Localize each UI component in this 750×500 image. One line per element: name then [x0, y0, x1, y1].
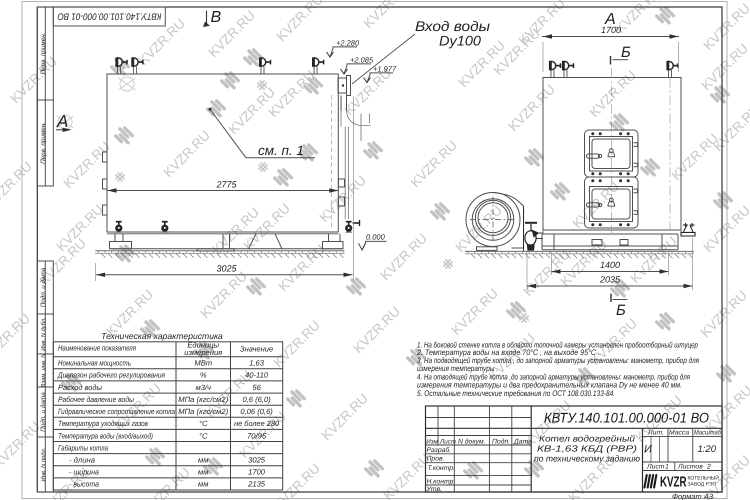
svg-text:KVZR.RU: KVZR.RU: [141, 465, 194, 500]
svg-text:Формат А3: Формат А3: [672, 492, 714, 500]
svg-text:м3/ч: м3/ч: [196, 383, 212, 392]
svg-text:МПа (кгс/см2): МПа (кгс/см2): [178, 407, 228, 416]
svg-text:Температура уходящих газов: Температура уходящих газов: [58, 419, 148, 428]
svg-text:KVZR.RU: KVZR.RU: [319, 391, 372, 444]
svg-text:KVZR.RU: KVZR.RU: [378, 231, 431, 284]
svg-text:%: %: [200, 371, 207, 380]
svg-text:2035: 2035: [599, 275, 621, 285]
svg-text:KVZR.RU: KVZR.RU: [711, 102, 750, 155]
svg-text:ЗАВОД РЭП: ЗАВОД РЭП: [688, 482, 717, 488]
svg-text:Масштаб: Масштаб: [694, 430, 722, 437]
svg-text:Лист: Лист: [646, 464, 665, 471]
svg-text:Dy100: Dy100: [439, 33, 481, 49]
svg-text:МПа (кгс/см2): МПа (кгс/см2): [178, 395, 228, 404]
svg-text:не более 280: не более 280: [234, 419, 280, 428]
svg-text:N докум.: N докум.: [458, 439, 486, 446]
svg-text:Утв.: Утв.: [426, 486, 443, 493]
svg-text:2775: 2775: [215, 180, 237, 190]
svg-text:Подп. и дата: Подп. и дата: [40, 392, 47, 432]
svg-text:И: И: [644, 444, 652, 456]
svg-text:мм: мм: [198, 480, 209, 489]
svg-text:+2.085: +2.085: [350, 56, 374, 65]
svg-text:мм: мм: [198, 468, 209, 477]
svg-text:40-110: 40-110: [245, 371, 269, 380]
svg-text:1400: 1400: [600, 260, 620, 270]
svg-text:В: В: [211, 9, 222, 26]
svg-text:Т.контр.: Т.контр.: [428, 465, 456, 472]
svg-text:Б: Б: [616, 302, 626, 319]
svg-text:KVZR.RU: KVZR.RU: [449, 286, 502, 339]
svg-text:Перв. примен.: Перв. примен.: [40, 122, 47, 164]
svg-text:Дата: Дата: [513, 439, 532, 446]
svg-text:Наименование показателя: Наименование показателя: [58, 344, 136, 353]
svg-text:KVZR.RU: KVZR.RU: [351, 304, 404, 357]
svg-text:А: А: [56, 112, 68, 131]
svg-text:КВ-1,63 КБД (РВР): КВ-1,63 КБД (РВР): [537, 444, 637, 454]
svg-text:°С: °С: [199, 419, 208, 428]
svg-text:Инв. N дубл.: Инв. N дубл.: [40, 317, 47, 351]
svg-text:1,63: 1,63: [249, 359, 265, 368]
svg-text:- ширина: - ширина: [69, 468, 99, 477]
svg-text:Инв. N подл.: Инв. N подл.: [40, 448, 47, 482]
svg-text:Рабочее давление воды: Рабочее давление воды: [58, 395, 134, 404]
svg-text:+2.280: +2.280: [336, 39, 360, 48]
svg-text:KVZR.RU: KVZR.RU: [0, 311, 33, 364]
svg-text:см. п. 1: см. п. 1: [258, 143, 304, 158]
svg-text:Перв. примен.: Перв. примен.: [40, 33, 47, 75]
svg-text:KVZR.RU: KVZR.RU: [271, 461, 324, 500]
svg-text:KVZR.RU: KVZR.RU: [408, 138, 461, 191]
svg-text:Масса: Масса: [669, 430, 689, 437]
svg-text:Подп.: Подп.: [492, 439, 510, 446]
svg-text:1700: 1700: [601, 25, 621, 35]
svg-text:Разраб.: Разраб.: [427, 447, 452, 454]
svg-text:0,06 (0,6): 0,06 (0,6): [240, 407, 273, 416]
svg-text:- высота: - высота: [69, 480, 99, 489]
svg-text:- длина: - длина: [69, 456, 95, 465]
svg-text:3025: 3025: [248, 456, 266, 465]
svg-text:KVZR.RU: KVZR.RU: [271, 318, 324, 371]
svg-text:3025: 3025: [216, 264, 237, 274]
svg-text:KVZR.RU: KVZR.RU: [628, 234, 681, 287]
svg-text:KVZR.RU: KVZR.RU: [0, 419, 43, 472]
svg-text:Диапазон рабочего регулировани: Диапазон рабочего регулирования: [57, 371, 165, 380]
svg-text:Листов: Листов: [677, 464, 703, 471]
svg-text:KVZR.RU: KVZR.RU: [698, 288, 750, 341]
svg-text:KVZR.RU: KVZR.RU: [0, 159, 35, 212]
svg-text:KVZR.RU: KVZR.RU: [161, 128, 214, 181]
svg-text:5. Остальные технические треб: 5. Остальные технические требования по О…: [417, 389, 615, 398]
svg-text:КВТУ.140.101.00.000-01 ВО: КВТУ.140.101.00.000-01 ВО: [57, 11, 162, 22]
svg-text:по техническому заданию: по техническому заданию: [534, 454, 640, 464]
svg-text:Номинальная мощность: Номинальная мощность: [58, 359, 131, 368]
svg-text:Расход воды: Расход воды: [58, 383, 102, 392]
svg-text:Лит.: Лит.: [647, 430, 664, 437]
svg-text:KVZR.RU: KVZR.RU: [703, 383, 750, 436]
svg-text:KVZR.RU: KVZR.RU: [361, 0, 414, 31]
svg-text:КВТУ.140.101.00.000-01 ВО: КВТУ.140.101.00.000-01 ВО: [544, 410, 709, 426]
svg-text:KVZR.RU: KVZR.RU: [669, 131, 722, 184]
svg-text:70/95: 70/95: [247, 431, 267, 440]
svg-text:Изм.: Изм.: [426, 439, 439, 446]
svg-text:Значение: Значение: [240, 345, 273, 354]
svg-text:Габариты котла: Габариты котла: [58, 443, 108, 452]
svg-text:KVZR.RU: KVZR.RU: [61, 139, 114, 192]
svg-text:Н.контр.: Н.контр.: [427, 479, 456, 486]
svg-text:KVZR.RU: KVZR.RU: [276, 242, 329, 295]
svg-text:Техническая характеристика: Техническая характеристика: [101, 331, 223, 341]
svg-text:KVZR.RU: KVZR.RU: [701, 203, 750, 256]
svg-text:Б: Б: [621, 44, 631, 61]
svg-text:56: 56: [252, 383, 261, 392]
svg-text:Температура воды (вход/выход): Температура воды (вход/выход): [58, 431, 153, 440]
svg-text:1: 1: [665, 464, 669, 471]
svg-text:0.000: 0.000: [366, 233, 386, 242]
svg-text:2135: 2135: [247, 480, 266, 489]
svg-text:МВт: МВт: [194, 359, 212, 368]
svg-text:1:20: 1:20: [698, 444, 717, 455]
svg-text:0,6 (6,0): 0,6 (6,0): [242, 395, 271, 404]
svg-text:Гидравлическое сопротивление к: Гидравлическое сопротивление котла: [58, 407, 175, 416]
svg-text:KVZR.RU: KVZR.RU: [8, 54, 61, 107]
svg-text:Взам. инв. N: Взам. инв. N: [41, 353, 47, 388]
svg-text:Пров.: Пров.: [427, 456, 445, 463]
svg-text:KVZR: KVZR: [660, 475, 687, 491]
svg-text:мм: мм: [198, 456, 209, 465]
svg-text:измерения: измерения: [184, 348, 222, 357]
svg-text:КОТЕЛЬНЫЙ: КОТЕЛЬНЫЙ: [688, 475, 720, 482]
svg-text:KVZR.RU: KVZR.RU: [506, 82, 559, 135]
svg-text:1700: 1700: [248, 468, 266, 477]
svg-text:°С: °С: [199, 431, 208, 440]
svg-text:+1.977: +1.977: [373, 65, 397, 74]
svg-text:KVZR.RU: KVZR.RU: [198, 269, 251, 322]
svg-text:KVZR.RU: KVZR.RU: [587, 68, 640, 121]
svg-text:Подп. и дата: Подп. и дата: [40, 267, 47, 307]
svg-text:2: 2: [706, 464, 711, 471]
svg-text:Лист: Лист: [439, 439, 456, 446]
svg-text:KVZR.RU: KVZR.RU: [317, 173, 370, 226]
svg-text:Котел водогрейный: Котел водогрейный: [539, 434, 635, 444]
